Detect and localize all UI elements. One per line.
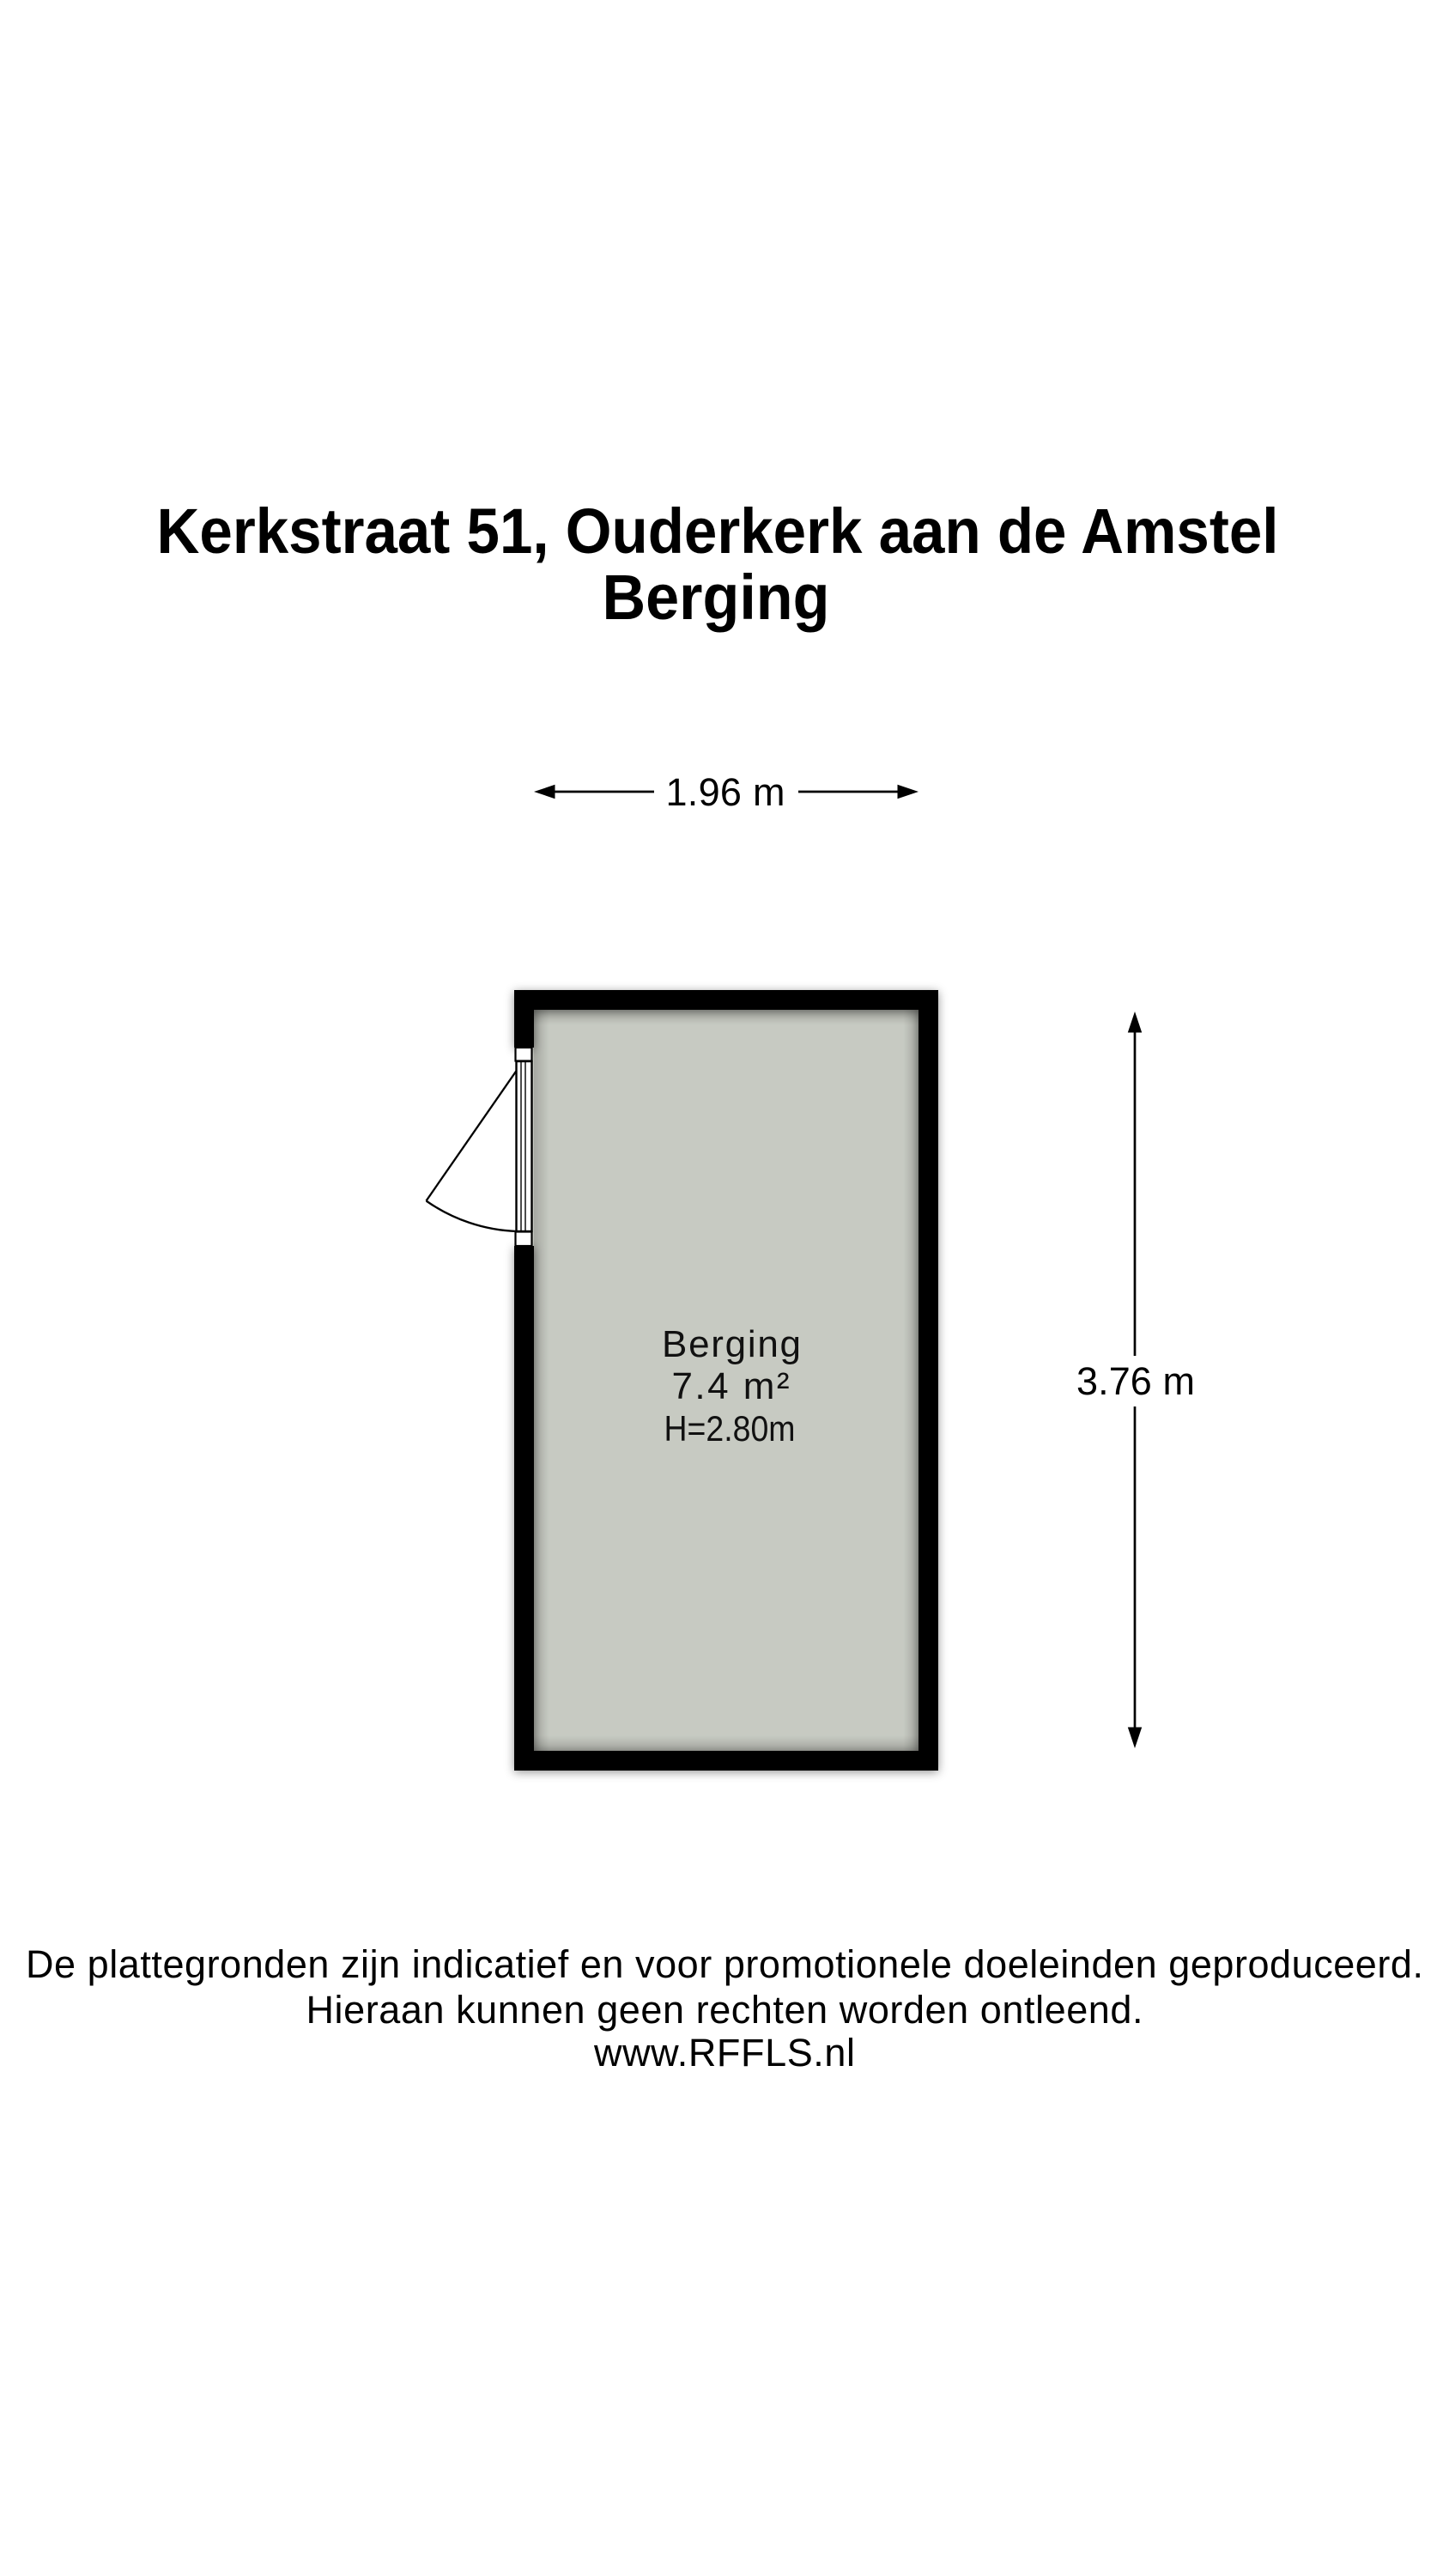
svg-text:www.RFFLS.nl: www.RFFLS.nl [593, 2031, 855, 2075]
svg-text:Kerkstraat 51, Ouderkerk aan d: Kerkstraat 51, Ouderkerk aan de Amstel [157, 495, 1279, 567]
svg-text:3.76 m: 3.76 m [1076, 1359, 1195, 1403]
svg-text:Berging: Berging [603, 562, 830, 633]
svg-text:De plattegronden zijn indicati: De plattegronden zijn indicatief en voor… [26, 1942, 1423, 1986]
svg-text:Berging: Berging [662, 1323, 801, 1365]
svg-text:H=2.80m: H=2.80m [664, 1408, 796, 1449]
svg-text:1.96 m: 1.96 m [666, 770, 785, 814]
svg-text:Hieraan kunnen geen rechten wo: Hieraan kunnen geen rechten worden ontle… [306, 1988, 1143, 2032]
svg-text:7.4 m²: 7.4 m² [672, 1365, 790, 1407]
